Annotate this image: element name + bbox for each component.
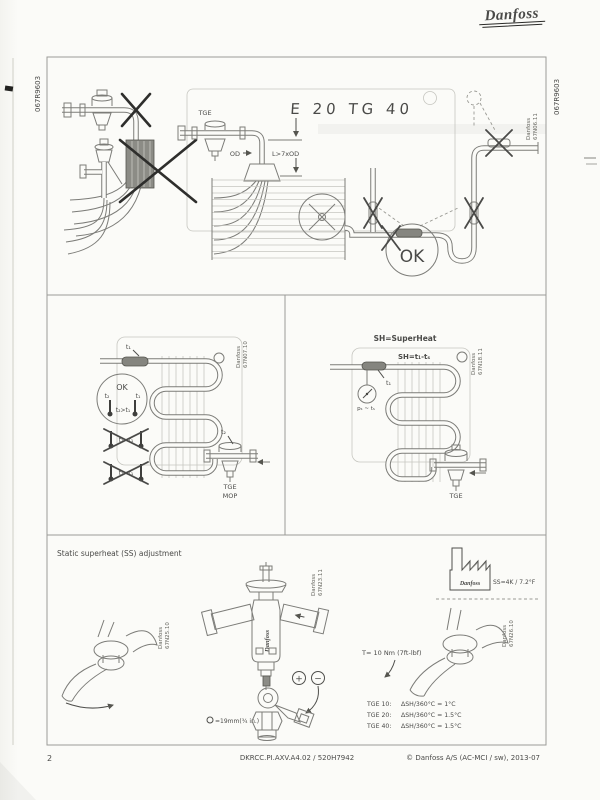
- rotation-arrow: [66, 703, 113, 708]
- ok-label: OK: [400, 247, 425, 267]
- figure-id: Danfoss: [311, 574, 317, 596]
- t1-label: t₁: [386, 379, 392, 387]
- doc-code-left: 067R9603: [34, 76, 42, 112]
- wrench-hold-figure: Danfoss 67N25.10: [62, 620, 171, 708]
- doc-code-right: 067R9603: [553, 79, 561, 115]
- figure-id: Danfoss: [526, 118, 532, 140]
- od-label: OD: [230, 150, 240, 158]
- turn-direction-arrow: [306, 686, 319, 713]
- figure-id: Danfoss: [158, 627, 164, 649]
- page-number: 2: [47, 754, 52, 763]
- factory-icon: Danfoss SS=4K / 7.2°F: [436, 548, 540, 599]
- thermometer-icon: [133, 400, 138, 417]
- scanned-instruction-page: Danfoss 067R9603 067R9603 Danfoss 67N06.…: [0, 0, 600, 800]
- table-row-value: ΔSH/360°C = 1°C: [401, 700, 456, 708]
- ghost-showthrough-text: E 20 TG 40: [290, 100, 414, 118]
- table-row-value: ΔSH/360°C = 1.5°C: [401, 722, 462, 730]
- sensor-bulb-t1: [122, 357, 148, 366]
- suction-line-figure: OK: [345, 91, 538, 276]
- panel-superheat: Danfoss 67N18.11 SH=SuperHeat SH=t₁-tₛ t…: [330, 334, 486, 500]
- factory-setting-label: SS=4K / 7.2°F: [493, 579, 536, 586]
- figure-id: Danfoss: [471, 353, 477, 375]
- superheat-title: SH=SuperHeat: [374, 334, 437, 343]
- gauge-label: pₛ ~ tₛ: [357, 406, 375, 412]
- minus-label: −: [314, 675, 322, 685]
- document-id: DKRCC.PI.AXV.A4.02 / 520H7942: [240, 754, 354, 762]
- figure-no: 67N23.11: [318, 569, 324, 596]
- figure-no: 67N25.10: [165, 622, 171, 649]
- factory-brand: Danfoss: [459, 581, 481, 587]
- inlet-connector: [202, 600, 255, 635]
- wrong-bulb-position-icon: [382, 226, 400, 250]
- hex-nut-icon: [252, 712, 282, 741]
- figure-no: 67N06.11: [533, 113, 539, 140]
- page-footer: 2 DKRCC.PI.AXV.A4.02 / 520H7942 © Danfos…: [47, 754, 540, 763]
- wrench-icon: [258, 688, 314, 727]
- adjustment-title: Static superheat (SS) adjustment: [57, 549, 182, 558]
- valve-label: TGE: [197, 109, 211, 117]
- ok-t2-label: t₂: [105, 393, 110, 400]
- torque-label: T= 10 Nm (7ft-lbf): [361, 649, 422, 657]
- superheat-formula: SH=t₁-tₛ: [398, 353, 430, 361]
- table-row-model: TGE 20:: [366, 712, 391, 719]
- thermometer-icon: [108, 400, 113, 417]
- outlet-connector: [279, 600, 328, 634]
- wrong-bulb-position-icon: [364, 198, 382, 228]
- danfoss-logo: Danfoss: [478, 5, 545, 27]
- ok-label: OK: [116, 383, 128, 392]
- plus-label: +: [295, 675, 303, 685]
- torque-figure: Danfoss 67N26.10 T= 10 Nm (7ft-lbf): [361, 608, 515, 696]
- ok-t1-label: t₁: [136, 393, 141, 400]
- figure-no: 67N07.10: [243, 341, 249, 368]
- t1-label: t₁: [126, 343, 132, 351]
- sensor-bulb: [396, 229, 422, 237]
- pressure-gauge-icon: pₛ ~ tₛ: [357, 370, 376, 412]
- figure-no: 67N26.10: [509, 620, 515, 647]
- valve-brand: Danfoss: [264, 629, 271, 653]
- spanner-size-icon: [207, 717, 213, 723]
- valve-label-line2: MOP: [223, 492, 238, 500]
- valve-adjustment-figure: Danfoss 67N23.11 Danfoss: [202, 562, 329, 741]
- panel-mounting: Danfoss 67N06.11 E 20 TG 40: [62, 89, 539, 276]
- figure-id: Danfoss: [236, 346, 242, 368]
- adjustment-table: TGE 10: ΔSH/360°C = 1°C TGE 20: ΔSH/360°…: [366, 700, 462, 730]
- ok-condition-badge: OK t₂ t₁ t₂>t₁: [97, 374, 147, 424]
- ghost-bulb-position: [467, 91, 481, 105]
- wrong-mounting-valve-b: [64, 139, 196, 254]
- table-row-model: TGE 40:: [366, 723, 391, 730]
- fan-icon: [299, 194, 345, 240]
- adjustment-spindle: [263, 676, 270, 686]
- valve-label-line1: TGE: [222, 483, 236, 491]
- evaporator-coil: [212, 178, 345, 260]
- sensor-bulb-t1: [362, 362, 386, 370]
- t2-label: t₂: [221, 428, 227, 436]
- length-label: L>7xOD: [272, 150, 299, 158]
- copyright-text: © Danfoss A/S (AC-MCI / sw), 2013-07: [406, 754, 540, 762]
- table-row-value: ΔSH/360°C = 1.5°C: [401, 711, 462, 719]
- panel-adjustment: Static superheat (SS) adjustment Danfoss…: [57, 548, 540, 741]
- figure-no: 67N18.11: [478, 348, 484, 375]
- table-row-model: TGE 10:: [366, 701, 391, 708]
- torque-arrow: [385, 660, 395, 677]
- valve-label: TGE: [448, 492, 462, 500]
- wrench-jaw: [126, 631, 157, 652]
- wrong-condition-equal: t₂≈t₁: [104, 429, 148, 451]
- distributor-cone: [244, 164, 280, 181]
- wrong-bulb-position-icon: [465, 198, 483, 228]
- rule-ok-label: t₂>t₁: [116, 407, 131, 414]
- document-figure: Danfoss 067R9603 067R9603 Danfoss 67N06.…: [0, 0, 600, 800]
- panel-bulb-check: Danfoss 67N07.10 t₁: [97, 337, 270, 500]
